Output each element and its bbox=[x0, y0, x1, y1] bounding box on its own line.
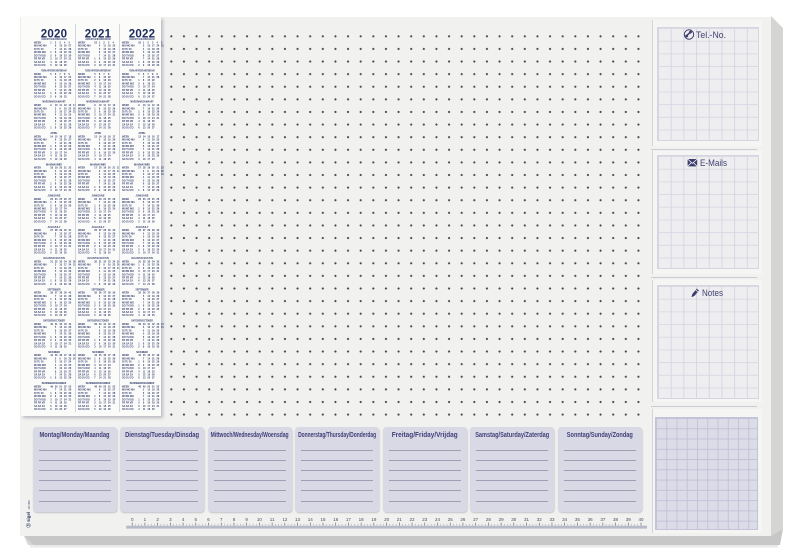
svg-text:7: 7 bbox=[220, 517, 223, 522]
svg-text:SO SU ZO4111825: SO SU ZO4111825 bbox=[78, 252, 111, 255]
svg-text:SO SU ZO29162330: SO SU ZO29162330 bbox=[78, 189, 116, 192]
svg-text:SO SU ZO7142128: SO SU ZO7142128 bbox=[34, 220, 67, 223]
svg-text:SO SU ZO4111825: SO SU ZO4111825 bbox=[78, 158, 111, 161]
svg-text:19: 19 bbox=[371, 517, 377, 522]
svg-text:31: 31 bbox=[524, 517, 530, 522]
svg-text:8: 8 bbox=[233, 517, 236, 522]
svg-text:SO SU ZO7142128: SO SU ZO7142128 bbox=[122, 283, 155, 286]
svg-text:SO SU ZO6132027: SO SU ZO6132027 bbox=[78, 220, 111, 223]
svg-text:12: 12 bbox=[282, 517, 288, 522]
svg-text:SO SU ZO6132027: SO SU ZO6132027 bbox=[122, 95, 155, 98]
svg-text:SO SU ZO310172431: SO SU ZO310172431 bbox=[122, 252, 160, 255]
svg-text:SO SU ZO5121926: SO SU ZO5121926 bbox=[78, 314, 111, 317]
svg-text:Samstag/Saturday/Zaterdag: Samstag/Saturday/Zaterdag bbox=[475, 432, 549, 439]
svg-text:SO SU ZO310172431: SO SU ZO310172431 bbox=[78, 64, 116, 67]
svg-text:37: 37 bbox=[600, 517, 606, 522]
svg-text:15: 15 bbox=[320, 517, 326, 522]
svg-text:18: 18 bbox=[359, 517, 365, 522]
svg-text:SO SU ZO7142128: SO SU ZO7142128 bbox=[78, 377, 111, 380]
svg-text:11: 11 bbox=[270, 517, 275, 522]
svg-text:Notes: Notes bbox=[702, 288, 723, 298]
svg-text:SO SU ZO5121926: SO SU ZO5121926 bbox=[34, 64, 67, 67]
svg-text:23: 23 bbox=[422, 517, 428, 522]
svg-text:38: 38 bbox=[613, 517, 619, 522]
svg-text:9: 9 bbox=[245, 517, 248, 522]
svg-text:26: 26 bbox=[460, 517, 466, 522]
svg-text:27: 27 bbox=[473, 517, 479, 522]
svg-text:SO SU ZO310172431: SO SU ZO310172431 bbox=[34, 189, 72, 192]
svg-text:SO SU ZO6132027: SO SU ZO6132027 bbox=[122, 377, 155, 380]
svg-text:Montag/Monday/Maandag: Montag/Monday/Maandag bbox=[40, 432, 110, 439]
svg-text:Dienstag/Tuesday/Dinsdag: Dienstag/Tuesday/Dinsdag bbox=[125, 432, 199, 439]
svg-text:21: 21 bbox=[397, 517, 403, 522]
svg-text:SO SU ZO6132027: SO SU ZO6132027 bbox=[34, 408, 67, 411]
svg-text:0: 0 bbox=[131, 517, 134, 522]
svg-text:34: 34 bbox=[562, 517, 568, 522]
svg-text:SO SU ZO18152229: SO SU ZO18152229 bbox=[122, 189, 160, 192]
svg-text:20: 20 bbox=[384, 517, 390, 522]
svg-text:39: 39 bbox=[626, 517, 632, 522]
svg-text:36: 36 bbox=[588, 517, 594, 522]
svg-text:30: 30 bbox=[511, 517, 517, 522]
svg-text:SO SU ZO18152229: SO SU ZO18152229 bbox=[34, 127, 72, 130]
svg-text:SO SU ZO5121926: SO SU ZO5121926 bbox=[78, 408, 111, 411]
svg-text:35: 35 bbox=[575, 517, 581, 522]
svg-text:6: 6 bbox=[207, 517, 210, 522]
svg-text:4: 4 bbox=[182, 517, 185, 522]
svg-text:Tel.-No.: Tel.-No. bbox=[696, 30, 726, 40]
svg-text:SO SU ZO3101724: SO SU ZO3101724 bbox=[122, 158, 155, 161]
svg-text:SO SU ZO18152229: SO SU ZO18152229 bbox=[78, 283, 116, 286]
svg-text:32: 32 bbox=[537, 517, 543, 522]
svg-text:Ⓢ sigelHO 355: Ⓢ sigelHO 355 bbox=[25, 500, 32, 528]
svg-text:1: 1 bbox=[144, 517, 147, 522]
svg-text:SO SU ZO29162330: SO SU ZO29162330 bbox=[34, 283, 72, 286]
svg-text:28: 28 bbox=[486, 517, 492, 522]
svg-text:SO SU ZO4111825: SO SU ZO4111825 bbox=[34, 345, 67, 348]
svg-text:29: 29 bbox=[499, 517, 505, 522]
svg-text:SO SU ZO4111825: SO SU ZO4111825 bbox=[122, 408, 155, 411]
svg-text:SO SU ZO18152229: SO SU ZO18152229 bbox=[34, 377, 72, 380]
svg-text:SO SU ZO7142128: SO SU ZO7142128 bbox=[78, 95, 111, 98]
svg-text:SO SU ZO4111825: SO SU ZO4111825 bbox=[122, 314, 155, 317]
svg-text:2: 2 bbox=[156, 517, 159, 522]
svg-text:13: 13 bbox=[295, 517, 301, 522]
svg-text:Donnerstag/Thursday/Donderdag: Donnerstag/Thursday/Donderdag bbox=[298, 432, 376, 439]
svg-text:25: 25 bbox=[448, 517, 454, 522]
svg-text:40: 40 bbox=[638, 517, 644, 522]
svg-text:Sonntag/Sunday/Zondag: Sonntag/Sunday/Zondag bbox=[567, 432, 633, 439]
svg-text:SO SU ZO29162330: SO SU ZO29162330 bbox=[122, 64, 160, 67]
svg-text:33: 33 bbox=[549, 517, 555, 522]
svg-text:16: 16 bbox=[333, 517, 339, 522]
svg-text:22: 22 bbox=[410, 517, 416, 522]
svg-text:24: 24 bbox=[435, 517, 441, 522]
svg-text:SO SU ZO29162330: SO SU ZO29162330 bbox=[122, 345, 160, 348]
svg-text:Mittwoch/Wednesday/Woensdag: Mittwoch/Wednesday/Woensdag bbox=[211, 432, 289, 439]
svg-text:SO SU ZO6132027: SO SU ZO6132027 bbox=[122, 127, 155, 130]
svg-text:Freitag/Friday/Vrijdag: Freitag/Friday/Vrijdag bbox=[392, 432, 458, 439]
svg-text:14: 14 bbox=[308, 517, 314, 522]
svg-text:E-Mails: E-Mails bbox=[700, 158, 727, 168]
svg-text:17: 17 bbox=[346, 517, 352, 522]
svg-text:3: 3 bbox=[169, 517, 172, 522]
svg-text:SO SU ZO310172431: SO SU ZO310172431 bbox=[78, 345, 116, 348]
svg-text:SO SU ZO7142128: SO SU ZO7142128 bbox=[78, 127, 111, 130]
svg-text:SO SU ZO5121926: SO SU ZO5121926 bbox=[34, 252, 67, 255]
svg-text:SO SU ZO291623: SO SU ZO291623 bbox=[34, 95, 67, 98]
svg-text:5: 5 bbox=[195, 517, 198, 522]
svg-text:SO SU ZO5121926: SO SU ZO5121926 bbox=[122, 220, 155, 223]
svg-text:10: 10 bbox=[257, 517, 263, 522]
svg-text:SO SU ZO5121926: SO SU ZO5121926 bbox=[34, 158, 67, 161]
svg-text:SO SU ZO6132027: SO SU ZO6132027 bbox=[34, 314, 67, 317]
